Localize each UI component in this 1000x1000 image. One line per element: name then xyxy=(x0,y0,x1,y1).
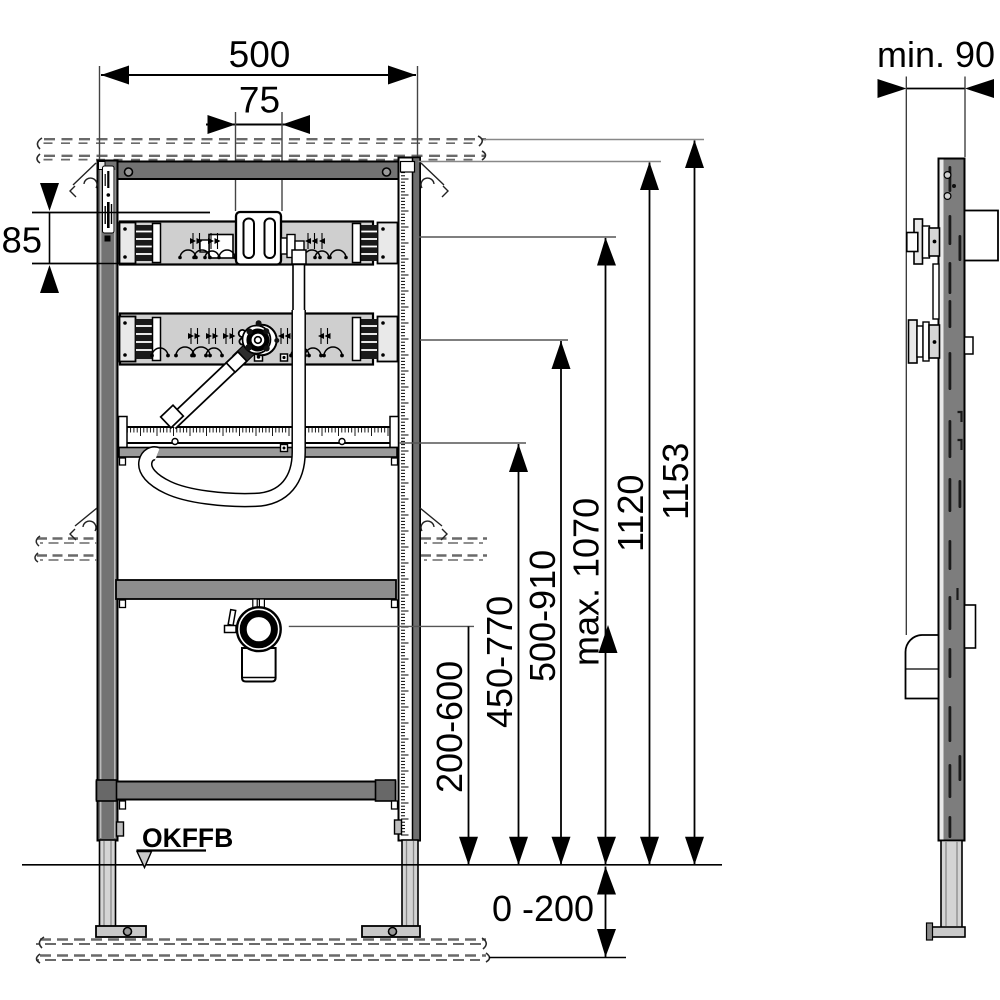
svg-text:1153: 1153 xyxy=(655,443,696,520)
svg-text:1120: 1120 xyxy=(610,475,651,552)
svg-text:85: 85 xyxy=(2,220,43,261)
svg-text:OKFFB: OKFFB xyxy=(142,823,233,853)
svg-text:max. 1070: max. 1070 xyxy=(566,498,607,666)
svg-text:200-600: 200-600 xyxy=(429,661,470,793)
svg-text:75: 75 xyxy=(239,80,280,121)
svg-text:min. 90: min. 90 xyxy=(877,34,995,75)
svg-text:500: 500 xyxy=(229,34,291,75)
svg-text:0 -200: 0 -200 xyxy=(492,888,594,929)
svg-text:450-770: 450-770 xyxy=(479,596,520,728)
svg-text:500-910: 500-910 xyxy=(522,550,563,682)
